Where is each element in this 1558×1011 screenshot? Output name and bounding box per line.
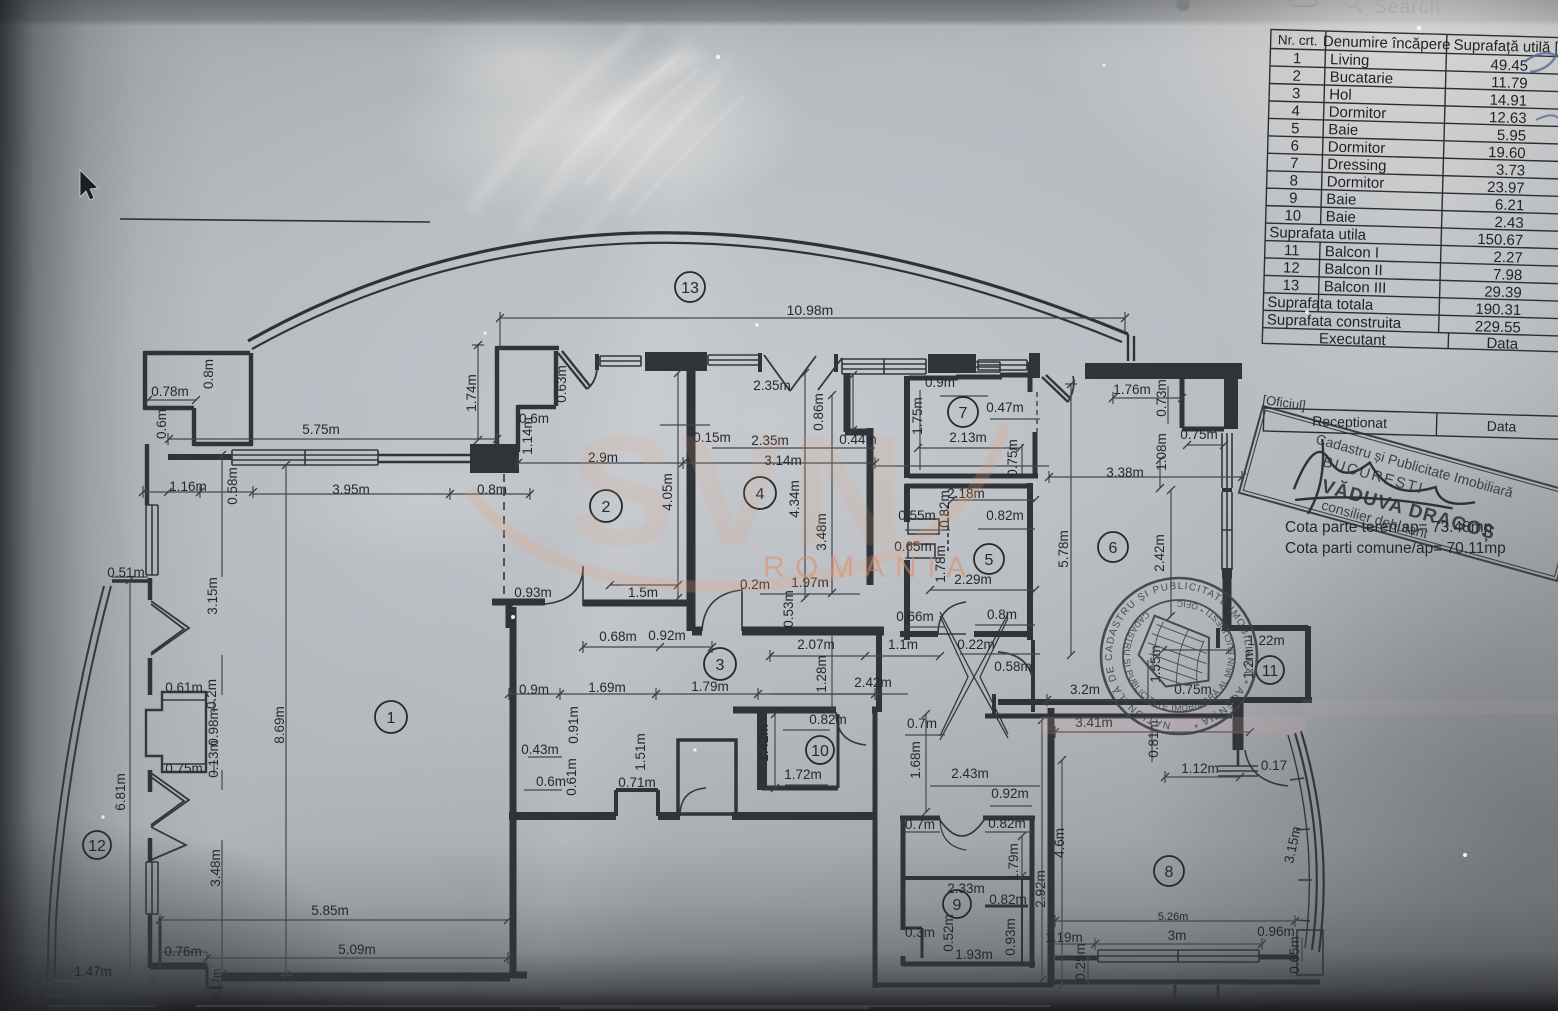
svg-text:0.6m: 0.6m <box>154 409 169 439</box>
svg-text:0.17m: 0.17m <box>211 969 223 1000</box>
svg-text:12: 12 <box>1283 259 1300 276</box>
svg-text:0.66m: 0.66m <box>896 609 934 624</box>
svg-text:Baie: Baie <box>1328 121 1358 139</box>
svg-text:0.2m: 0.2m <box>204 679 219 709</box>
svg-text:2.92m: 2.92m <box>1033 870 1048 908</box>
svg-text:Dressing: Dressing <box>1327 156 1387 175</box>
svg-text:5.95: 5.95 <box>1497 127 1527 145</box>
svg-text:190.31: 190.31 <box>1475 301 1521 319</box>
svg-text:2.42m: 2.42m <box>854 675 892 690</box>
svg-text:[Oficiul]: [Oficiul] <box>1262 392 1307 413</box>
svg-text:13: 13 <box>681 280 699 297</box>
svg-text:1: 1 <box>387 710 396 727</box>
svg-text:0.82m: 0.82m <box>809 712 847 727</box>
svg-text:0.65m: 0.65m <box>1287 936 1302 974</box>
svg-text:2.07m: 2.07m <box>797 637 835 652</box>
svg-text:11.79: 11.79 <box>1491 74 1528 92</box>
svg-text:Living: Living <box>1330 51 1370 69</box>
svg-text:8.69m: 8.69m <box>272 706 287 744</box>
svg-text:19.60: 19.60 <box>1488 144 1526 162</box>
svg-text:3.15m: 3.15m <box>1281 825 1303 865</box>
svg-text:0.17: 0.17 <box>1261 758 1287 773</box>
svg-text:Data: Data <box>1486 335 1519 353</box>
svg-text:0.22m: 0.22m <box>957 637 995 652</box>
svg-text:1.42m: 1.42m <box>756 724 771 762</box>
svg-text:0.92m: 0.92m <box>991 786 1029 801</box>
svg-text:12: 12 <box>88 838 106 855</box>
svg-text:4: 4 <box>1291 103 1300 120</box>
svg-text:0.75m: 0.75m <box>165 761 203 776</box>
svg-text:0.73m: 0.73m <box>1154 379 1169 417</box>
svg-text:1.68m: 1.68m <box>908 741 923 779</box>
svg-text:13: 13 <box>1282 277 1299 294</box>
svg-text:5.26m: 5.26m <box>1158 911 1189 923</box>
svg-text:Search: Search <box>1374 0 1441 18</box>
svg-text:1.51m: 1.51m <box>633 733 648 771</box>
svg-text:1.47m: 1.47m <box>74 964 112 979</box>
svg-text:1.93m: 1.93m <box>955 947 993 962</box>
svg-text:229.55: 229.55 <box>1475 318 1521 336</box>
svg-text:0.43m: 0.43m <box>521 742 559 757</box>
svg-text:1.69m: 1.69m <box>588 680 626 695</box>
svg-text:0.9m: 0.9m <box>925 375 955 390</box>
svg-text:Denumire încăpere: Denumire încăpere <box>1323 33 1451 54</box>
svg-text:1.74m: 1.74m <box>464 374 479 412</box>
svg-text:8: 8 <box>1165 864 1174 881</box>
svg-text:6: 6 <box>1109 540 1118 557</box>
svg-text:1.79m: 1.79m <box>691 679 729 694</box>
svg-text:2.43: 2.43 <box>1494 214 1524 232</box>
svg-text:0.3m: 0.3m <box>905 925 935 940</box>
svg-text:0.98m: 0.98m <box>206 708 221 746</box>
svg-text:0.92m: 0.92m <box>648 628 686 643</box>
svg-text:0.25m: 0.25m <box>1073 943 1088 981</box>
svg-text:3.73: 3.73 <box>1496 162 1526 180</box>
svg-text:0.9m: 0.9m <box>519 682 549 697</box>
svg-text:6.81m: 6.81m <box>113 773 128 811</box>
svg-text:Cota parti comune/ap= 70.11mp: Cota parti comune/ap= 70.11mp <box>1285 540 1506 557</box>
svg-text:0.8m: 0.8m <box>477 482 507 497</box>
svg-text:0.8m: 0.8m <box>987 607 1017 622</box>
svg-text:2.27: 2.27 <box>1493 249 1523 267</box>
svg-text:0.58m: 0.58m <box>225 467 240 505</box>
svg-text:0.61m: 0.61m <box>564 758 579 796</box>
svg-text:0.51m: 0.51m <box>107 565 145 580</box>
svg-text:Data: Data <box>1487 418 1517 435</box>
svg-text:0.82m: 0.82m <box>989 892 1027 907</box>
svg-text:4.6m: 4.6m <box>1052 828 1067 858</box>
svg-text:8: 8 <box>1289 172 1298 189</box>
svg-text:ROMANIA: ROMANIA <box>763 551 977 584</box>
svg-text:2.42m: 2.42m <box>1152 534 1167 572</box>
svg-text:Baie: Baie <box>1326 191 1356 209</box>
svg-text:12.63: 12.63 <box>1489 109 1527 127</box>
svg-text:5.78m: 5.78m <box>1056 530 1071 568</box>
svg-text:3.38m: 3.38m <box>1106 465 1144 480</box>
svg-text:Dormitor: Dormitor <box>1327 173 1385 192</box>
svg-text:5.85m: 5.85m <box>311 903 349 918</box>
svg-text:0.82m: 0.82m <box>986 508 1024 523</box>
svg-text:1.1m: 1.1m <box>888 637 918 652</box>
svg-text:1.08m: 1.08m <box>1154 433 1169 471</box>
svg-text:10: 10 <box>1284 207 1301 224</box>
svg-text:23.97: 23.97 <box>1487 179 1525 197</box>
svg-text:0.52m: 0.52m <box>941 914 956 952</box>
svg-text:Nr. crt.: Nr. crt. <box>1278 32 1318 48</box>
svg-text:2.43m: 2.43m <box>951 766 989 781</box>
svg-text:2: 2 <box>1292 68 1301 85</box>
svg-text:2.13m: 2.13m <box>949 430 987 445</box>
svg-text:1.28m: 1.28m <box>814 655 829 693</box>
svg-text:0.47m: 0.47m <box>986 400 1024 415</box>
svg-text:1.79m: 1.79m <box>1006 843 1021 881</box>
svg-text:Baie: Baie <box>1326 208 1356 226</box>
svg-text:0.82m: 0.82m <box>988 816 1026 831</box>
svg-text:150.67: 150.67 <box>1477 231 1523 249</box>
svg-text:Dormitor: Dormitor <box>1328 104 1386 123</box>
svg-text:0.6m: 0.6m <box>536 774 566 789</box>
svg-text:0.93m: 0.93m <box>1003 918 1018 956</box>
svg-text:1.14m: 1.14m <box>520 417 535 455</box>
svg-text:3m: 3m <box>1168 928 1187 943</box>
svg-text:0.78m: 0.78m <box>151 384 189 399</box>
svg-text:3.48m: 3.48m <box>208 849 223 887</box>
svg-text:Bucatarie: Bucatarie <box>1329 69 1393 88</box>
svg-text:49.45: 49.45 <box>1490 57 1528 75</box>
svg-text:0.7m: 0.7m <box>907 716 937 731</box>
svg-text:0.71m: 0.71m <box>618 775 656 790</box>
svg-text:9: 9 <box>953 897 962 914</box>
svg-text:0.75m: 0.75m <box>1180 427 1218 442</box>
svg-text:6.21: 6.21 <box>1495 197 1525 215</box>
svg-text:3.2m: 3.2m <box>1070 682 1100 697</box>
svg-text:Receptionat: Receptionat <box>1312 413 1387 431</box>
svg-text:0.91m: 0.91m <box>566 706 581 744</box>
svg-text:5: 5 <box>1291 120 1300 137</box>
svg-text:0.68m: 0.68m <box>599 629 637 644</box>
svg-text:5.75m: 5.75m <box>302 422 340 437</box>
svg-text:Balcon II: Balcon II <box>1324 261 1383 280</box>
svg-text:2.35m: 2.35m <box>753 378 791 393</box>
svg-text:0.13m: 0.13m <box>206 740 221 778</box>
svg-text:3.15m: 3.15m <box>205 577 220 615</box>
svg-text:0.63m: 0.63m <box>554 365 569 403</box>
svg-text:5.09m: 5.09m <box>338 942 376 957</box>
svg-text:0.76m: 0.76m <box>164 944 202 959</box>
svg-text:0.8m: 0.8m <box>201 359 216 389</box>
svg-text:5: 5 <box>985 552 994 569</box>
svg-text:1.75m: 1.75m <box>910 397 925 435</box>
svg-text:11: 11 <box>1262 663 1279 680</box>
svg-text:7: 7 <box>1290 155 1299 172</box>
svg-text:3.95m: 3.95m <box>332 482 370 497</box>
svg-text:3: 3 <box>716 657 725 674</box>
svg-text:6: 6 <box>1290 137 1299 154</box>
svg-text:Executant: Executant <box>1319 330 1387 349</box>
svg-text:Balcon III: Balcon III <box>1324 278 1387 297</box>
svg-text:Dormitor: Dormitor <box>1328 139 1386 158</box>
svg-text:1.12m: 1.12m <box>1181 761 1219 776</box>
svg-text:10.98m: 10.98m <box>787 302 834 318</box>
svg-text:1: 1 <box>1293 50 1302 67</box>
svg-text:1.16m: 1.16m <box>169 479 207 494</box>
svg-text:Balcon I: Balcon I <box>1325 243 1380 262</box>
svg-text:0.61m: 0.61m <box>165 680 203 695</box>
svg-text:0.93m: 0.93m <box>514 585 552 600</box>
svg-text:0.75m: 0.75m <box>1005 439 1020 477</box>
svg-text:1.76m: 1.76m <box>1113 382 1151 397</box>
svg-text:0.53m: 0.53m <box>781 590 796 628</box>
svg-text:29.39: 29.39 <box>1484 284 1522 302</box>
svg-text:0.58m: 0.58m <box>994 659 1032 674</box>
svg-text:10: 10 <box>811 743 829 760</box>
svg-text:0.7m: 0.7m <box>905 817 935 832</box>
svg-text:Suprafata utila: Suprafata utila <box>1269 224 1367 244</box>
svg-text:3: 3 <box>1292 85 1301 102</box>
svg-text:Cota parte teren/ap= 73.48mp: Cota parte teren/ap= 73.48mp <box>1285 519 1492 536</box>
svg-text:7.98: 7.98 <box>1493 266 1523 284</box>
svg-text:1.19m: 1.19m <box>1045 930 1083 945</box>
svg-text:Hol: Hol <box>1329 86 1352 104</box>
svg-text:1.72m: 1.72m <box>784 767 822 782</box>
svg-text:14.91: 14.91 <box>1489 92 1527 110</box>
svg-text:11: 11 <box>1284 242 1300 259</box>
svg-text:7: 7 <box>959 405 968 422</box>
svg-text:9: 9 <box>1289 190 1298 207</box>
